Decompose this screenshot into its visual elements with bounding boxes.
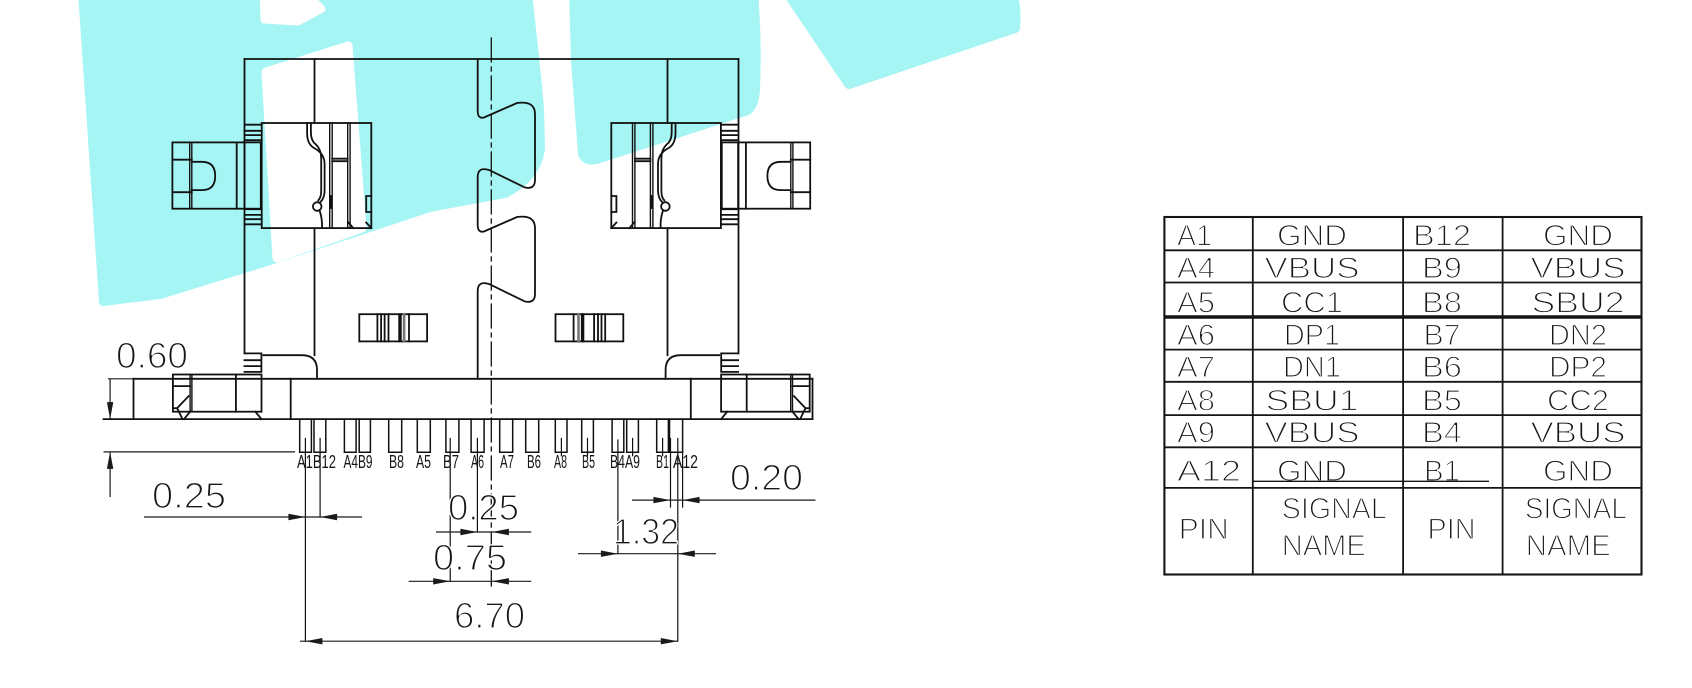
svg-text:0.60: 0.60 xyxy=(116,335,188,376)
svg-text:0.25: 0.25 xyxy=(448,487,519,528)
svg-text:B4A9: B4A9 xyxy=(610,452,640,472)
svg-text:A7: A7 xyxy=(500,452,514,472)
svg-text:DN2: DN2 xyxy=(1549,319,1607,352)
svg-text:B8: B8 xyxy=(1422,286,1462,319)
svg-text:VBUS: VBUS xyxy=(1531,417,1626,450)
svg-text:DP2: DP2 xyxy=(1549,351,1607,384)
svg-text:GND: GND xyxy=(1277,220,1347,253)
svg-text:A6: A6 xyxy=(1177,319,1215,352)
svg-text:NAME: NAME xyxy=(1526,530,1611,563)
svg-text:VBUS: VBUS xyxy=(1265,252,1360,285)
svg-text:B1: B1 xyxy=(656,452,669,472)
svg-text:B6: B6 xyxy=(1422,351,1462,384)
svg-text:B7: B7 xyxy=(443,452,459,472)
svg-text:1.32: 1.32 xyxy=(613,511,679,552)
svg-text:A4: A4 xyxy=(1177,252,1215,285)
svg-text:VBUS: VBUS xyxy=(1531,252,1626,285)
svg-text:NAME: NAME xyxy=(1282,530,1366,563)
svg-text:A6: A6 xyxy=(471,452,484,472)
svg-text:VBUS: VBUS xyxy=(1265,417,1360,450)
svg-text:A1B12: A1B12 xyxy=(297,452,336,472)
svg-text:B1: B1 xyxy=(1424,455,1460,488)
svg-text:SBU2: SBU2 xyxy=(1532,286,1625,319)
svg-text:B4: B4 xyxy=(1422,417,1462,450)
svg-text:DN1: DN1 xyxy=(1283,351,1341,384)
svg-text:B7: B7 xyxy=(1424,319,1461,352)
svg-text:A8: A8 xyxy=(554,452,567,472)
svg-text:A12: A12 xyxy=(673,452,698,472)
svg-text:SIGNAL: SIGNAL xyxy=(1525,493,1627,526)
svg-text:0.20: 0.20 xyxy=(730,457,803,498)
svg-text:A5: A5 xyxy=(1177,286,1215,319)
svg-text:SBU1: SBU1 xyxy=(1266,384,1359,417)
svg-text:CC1: CC1 xyxy=(1281,286,1343,319)
svg-text:A4B9: A4B9 xyxy=(344,452,373,472)
svg-text:PIN: PIN xyxy=(1179,513,1229,546)
svg-text:A1: A1 xyxy=(1177,220,1212,253)
svg-text:CC2: CC2 xyxy=(1547,384,1609,417)
svg-text:A5: A5 xyxy=(416,452,431,472)
svg-text:B12: B12 xyxy=(1413,220,1471,253)
svg-text:A8: A8 xyxy=(1177,384,1215,417)
svg-text:A7: A7 xyxy=(1177,351,1215,384)
svg-text:SIGNAL: SIGNAL xyxy=(1282,493,1387,526)
svg-text:B5: B5 xyxy=(582,452,595,472)
svg-text:A12: A12 xyxy=(1177,455,1241,488)
svg-text:B6: B6 xyxy=(527,452,541,472)
svg-text:B8: B8 xyxy=(389,452,404,472)
svg-text:B9: B9 xyxy=(1422,252,1462,285)
svg-text:GND: GND xyxy=(1277,455,1347,488)
svg-text:6.70: 6.70 xyxy=(454,595,525,636)
svg-text:GND: GND xyxy=(1543,455,1613,488)
svg-text:GND: GND xyxy=(1543,220,1613,253)
svg-text:B5: B5 xyxy=(1422,384,1462,417)
svg-text:DP1: DP1 xyxy=(1284,319,1340,352)
svg-text:PIN: PIN xyxy=(1428,513,1476,546)
svg-text:A9: A9 xyxy=(1177,417,1215,450)
svg-text:0.25: 0.25 xyxy=(152,475,226,516)
svg-text:0.75: 0.75 xyxy=(433,537,507,578)
